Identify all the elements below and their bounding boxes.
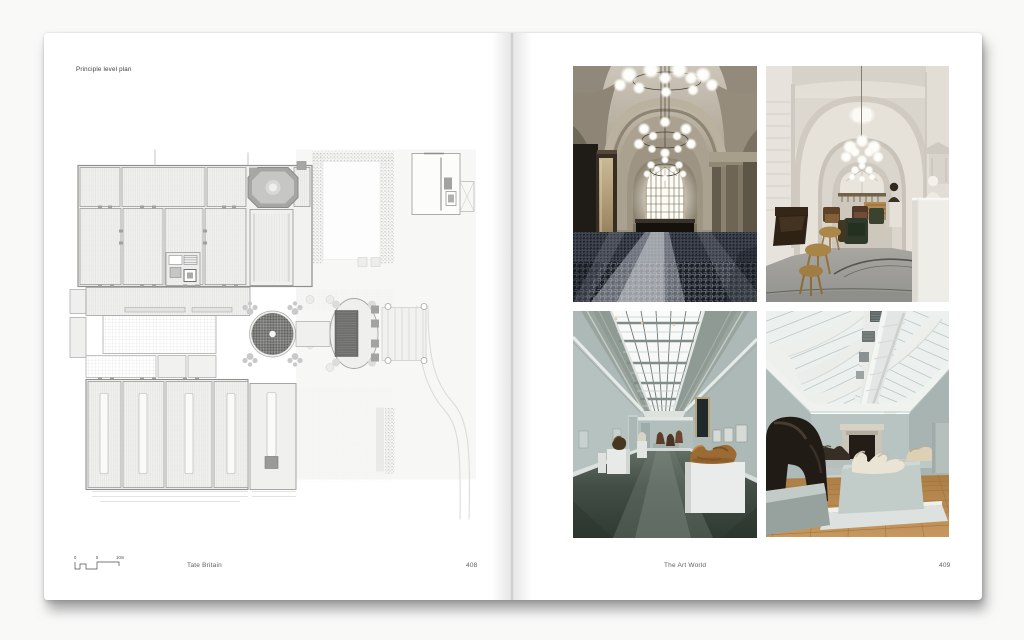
svg-text:5: 5: [96, 555, 99, 560]
svg-text:0: 0: [74, 555, 77, 560]
svg-text:10m: 10m: [116, 555, 125, 560]
